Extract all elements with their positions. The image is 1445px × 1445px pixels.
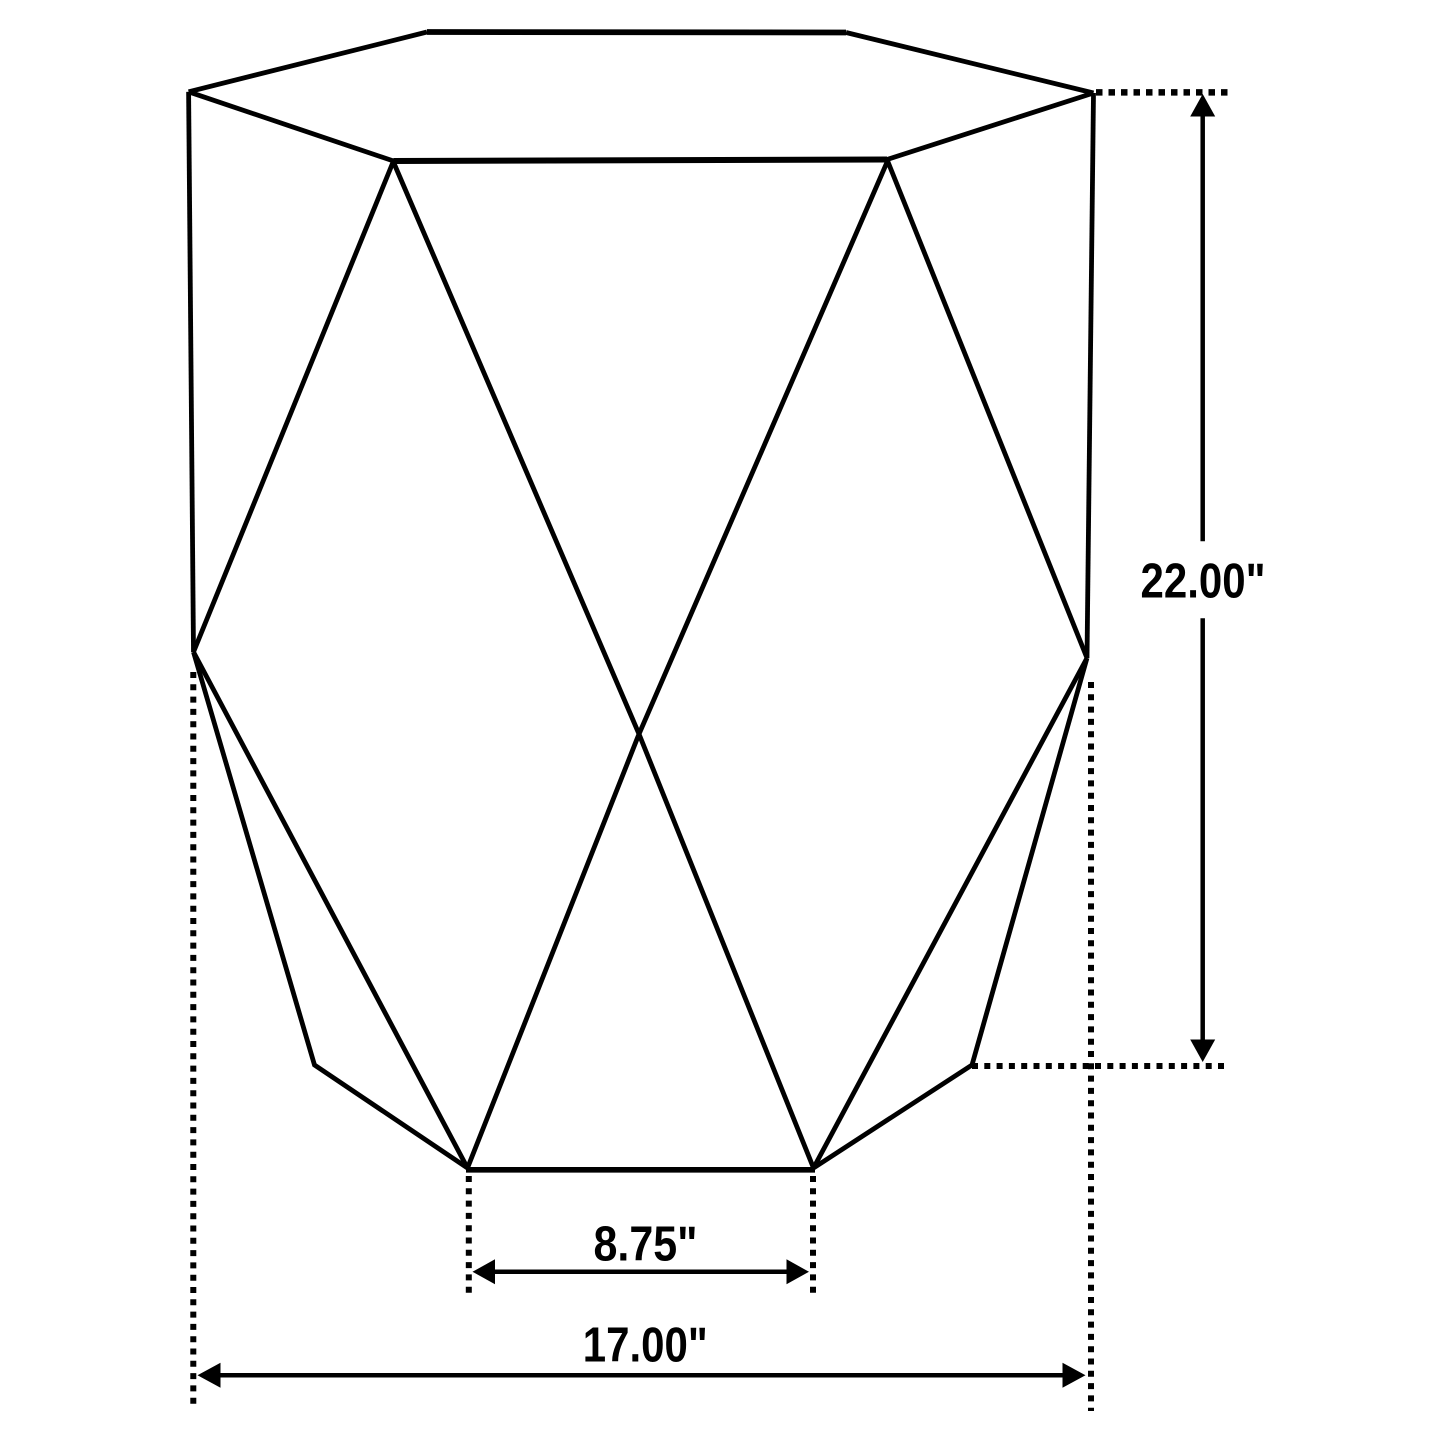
svg-text:8.75": 8.75"	[594, 1218, 698, 1272]
svg-text:22.00": 22.00"	[1141, 555, 1266, 609]
svg-text:17.00": 17.00"	[583, 1319, 708, 1373]
